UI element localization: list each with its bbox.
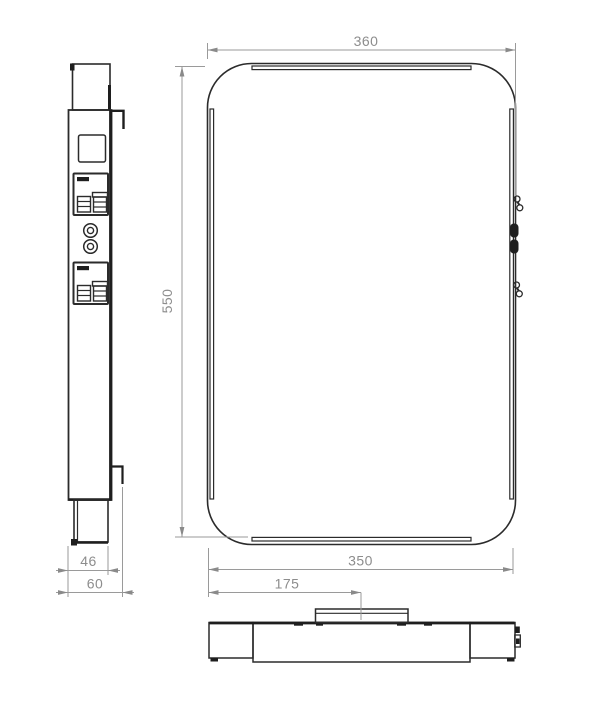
lower-bracket-foot [71,539,77,546]
dimension-label: 550 [159,289,175,314]
side-terminal-block-lower [74,263,109,305]
lower-bracket-outline [74,500,108,542]
dimension-front-width: 360 [208,33,516,196]
arrowhead-right [108,568,118,573]
terminal-right [94,286,107,301]
terminal-left [78,286,91,302]
arrowhead-left [208,48,218,53]
bottom-body [253,623,470,663]
port-inner [87,243,93,249]
bottom-left-cap [209,623,253,659]
edge-tick [424,624,432,626]
dimension-bottom-width: 350 [209,548,514,597]
front-bottom-strip [252,537,471,541]
arrowhead-top [180,67,185,77]
dimension-label: 360 [354,33,379,49]
drawing-canvas: 360 550 350 175 46 [0,0,600,712]
clip-ring [514,282,520,288]
arrowhead-right [123,590,133,595]
latch-bump [510,224,519,238]
front-right-latch [510,224,519,254]
clip-solid [515,627,520,634]
front-top-strip [252,66,471,70]
front-right-strip [510,109,514,499]
side-upper-bracket [73,64,111,110]
clip-ring [517,205,523,211]
dimension-label: 350 [348,553,373,569]
arrowhead-right [351,590,361,595]
side-view [69,64,124,546]
port-outer [84,224,98,238]
side-top-hook [112,111,124,129]
clip-link [517,202,519,205]
bottom-right-foot [507,658,515,662]
edge-tick [397,624,406,626]
arrowhead-left [58,590,68,595]
edge-tick [316,624,323,626]
dimension-front-height: 550 [159,67,248,538]
clip-inner [516,639,520,645]
front-left-strip [210,109,214,499]
terminal-block-switch [77,266,89,270]
arrowhead-bottom [180,527,185,537]
front-view [208,64,523,545]
dimension-label: 60 [87,576,104,592]
bottom-view [209,609,520,662]
latch-bump [510,240,519,254]
side-bottom-hook [112,467,123,485]
port-inner [87,227,93,233]
bottom-left-foot [211,658,219,662]
edge-tick [294,624,303,626]
arrowhead-right [503,567,513,572]
bottom-mount-tab [316,609,409,623]
bottom-right-cap [470,623,515,659]
mount-tab-outline [316,609,409,623]
side-lower-bracket [71,500,108,546]
arrowhead-left [209,567,219,572]
arrowhead-left [209,590,219,595]
dimension-label: 175 [275,576,300,592]
terminal-left [78,197,91,213]
dimension-label: 46 [80,553,97,569]
side-terminal-block-upper [74,174,109,216]
arrowhead-right [506,48,516,53]
front-panel-outline [208,64,516,545]
terminal-block-switch [77,177,89,181]
terminal-right [94,197,107,212]
technical-drawing: 360 550 350 175 46 [0,0,600,712]
side-upper-bracket-tab [70,64,75,71]
side-window [79,135,106,162]
arrowhead-left [58,568,68,573]
port-outer [84,240,98,254]
clip-link [517,288,519,291]
clip-ring [516,291,522,297]
side-round-ports [84,224,98,254]
